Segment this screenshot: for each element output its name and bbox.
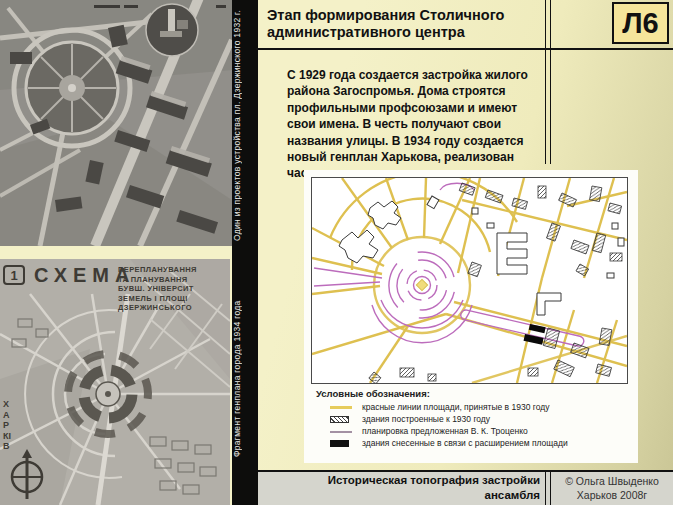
monument-inset — [146, 4, 198, 56]
photo-genplan-1934: 1 СХЕМА ПЕРЕПЛАНУВАННЯ ТА ПЛАНУВАННЯ БУВ… — [0, 259, 230, 505]
slide-code-box: Л6 — [612, 2, 669, 44]
legend-title: Условные обозначения: — [316, 388, 430, 399]
presentation-slide: 1 СХЕМА ПЕРЕПЛАНУВАННЯ ТА ПЛАНУВАННЯ БУВ… — [0, 0, 673, 505]
schema-subtitle-line: ПЕРЕПЛАНУВАННЯ — [118, 265, 197, 275]
legend-item: планировка предложенная В. К. Троценко — [304, 426, 634, 438]
vertical-divider-bottom — [545, 470, 551, 505]
legend-label: здания снесенные в связи с расширением п… — [362, 438, 568, 448]
city-plan-drawing — [312, 178, 627, 383]
footer-title: Историческая топография застройки ансамб… — [272, 473, 540, 505]
legend-swatch-gray-line — [330, 431, 352, 433]
photo-project-1932 — [0, 0, 232, 246]
caption-project-1932: Один из проектов устройства пл. Дзержинс… — [232, 4, 258, 246]
schema-subtitle-line: ДЗЕРЖИНСЬКОГО — [118, 303, 197, 313]
schema-subtitle-line: ТА ПЛАНУВАННЯ — [118, 275, 197, 285]
schema-subtitle-line: ЗЕМЕЛЬ І ПЛОЩІ — [118, 294, 197, 304]
caption-strip: Один из проектов устройства пл. Дзержинс… — [232, 0, 258, 505]
legend-item: здания построенные к 1930 году — [304, 414, 634, 426]
vertical-divider-top — [545, 0, 551, 164]
legend-swatch-hatched-building — [330, 416, 349, 423]
schema-side-label: ХАРКІВ — [3, 399, 12, 452]
legend-label: планировка предложенная В. К. Троценко — [362, 426, 528, 436]
map-panel: Условные обозначения: красные линии площ… — [304, 170, 638, 463]
legend-swatch-yellow-line — [330, 406, 352, 409]
slide-title: Этап формирования Столичного администрат… — [267, 7, 547, 41]
project-1932-drawing — [0, 0, 232, 246]
schema-index-badge: 1 — [3, 265, 25, 285]
city-plan-map — [311, 177, 628, 384]
schema-subtitle: ПЕРЕПЛАНУВАННЯ ТА ПЛАНУВАННЯ БУВШ. УНІВЕ… — [118, 265, 197, 313]
legend-swatch-black-building — [330, 440, 349, 447]
header-rule — [256, 48, 673, 50]
legend-label: здания построенные к 1930 году — [362, 414, 490, 424]
caption-genplan-1934: Фрагмент генплана города 1934 года — [232, 258, 258, 500]
legend-item: здания снесенные в связи с расширением п… — [304, 438, 634, 450]
legend-label: красные линии площади, принятые в 1930 г… — [362, 402, 549, 412]
credit-text: © Ольга Швыденко Харьков 2008г — [553, 474, 671, 502]
legend-item: красные линии площади, принятые в 1930 г… — [304, 402, 634, 414]
intro-paragraph: С 1929 года создается застройка жилого р… — [287, 67, 545, 182]
schema-subtitle-line: БУВШ. УНІВЕРСИТ — [118, 284, 197, 294]
